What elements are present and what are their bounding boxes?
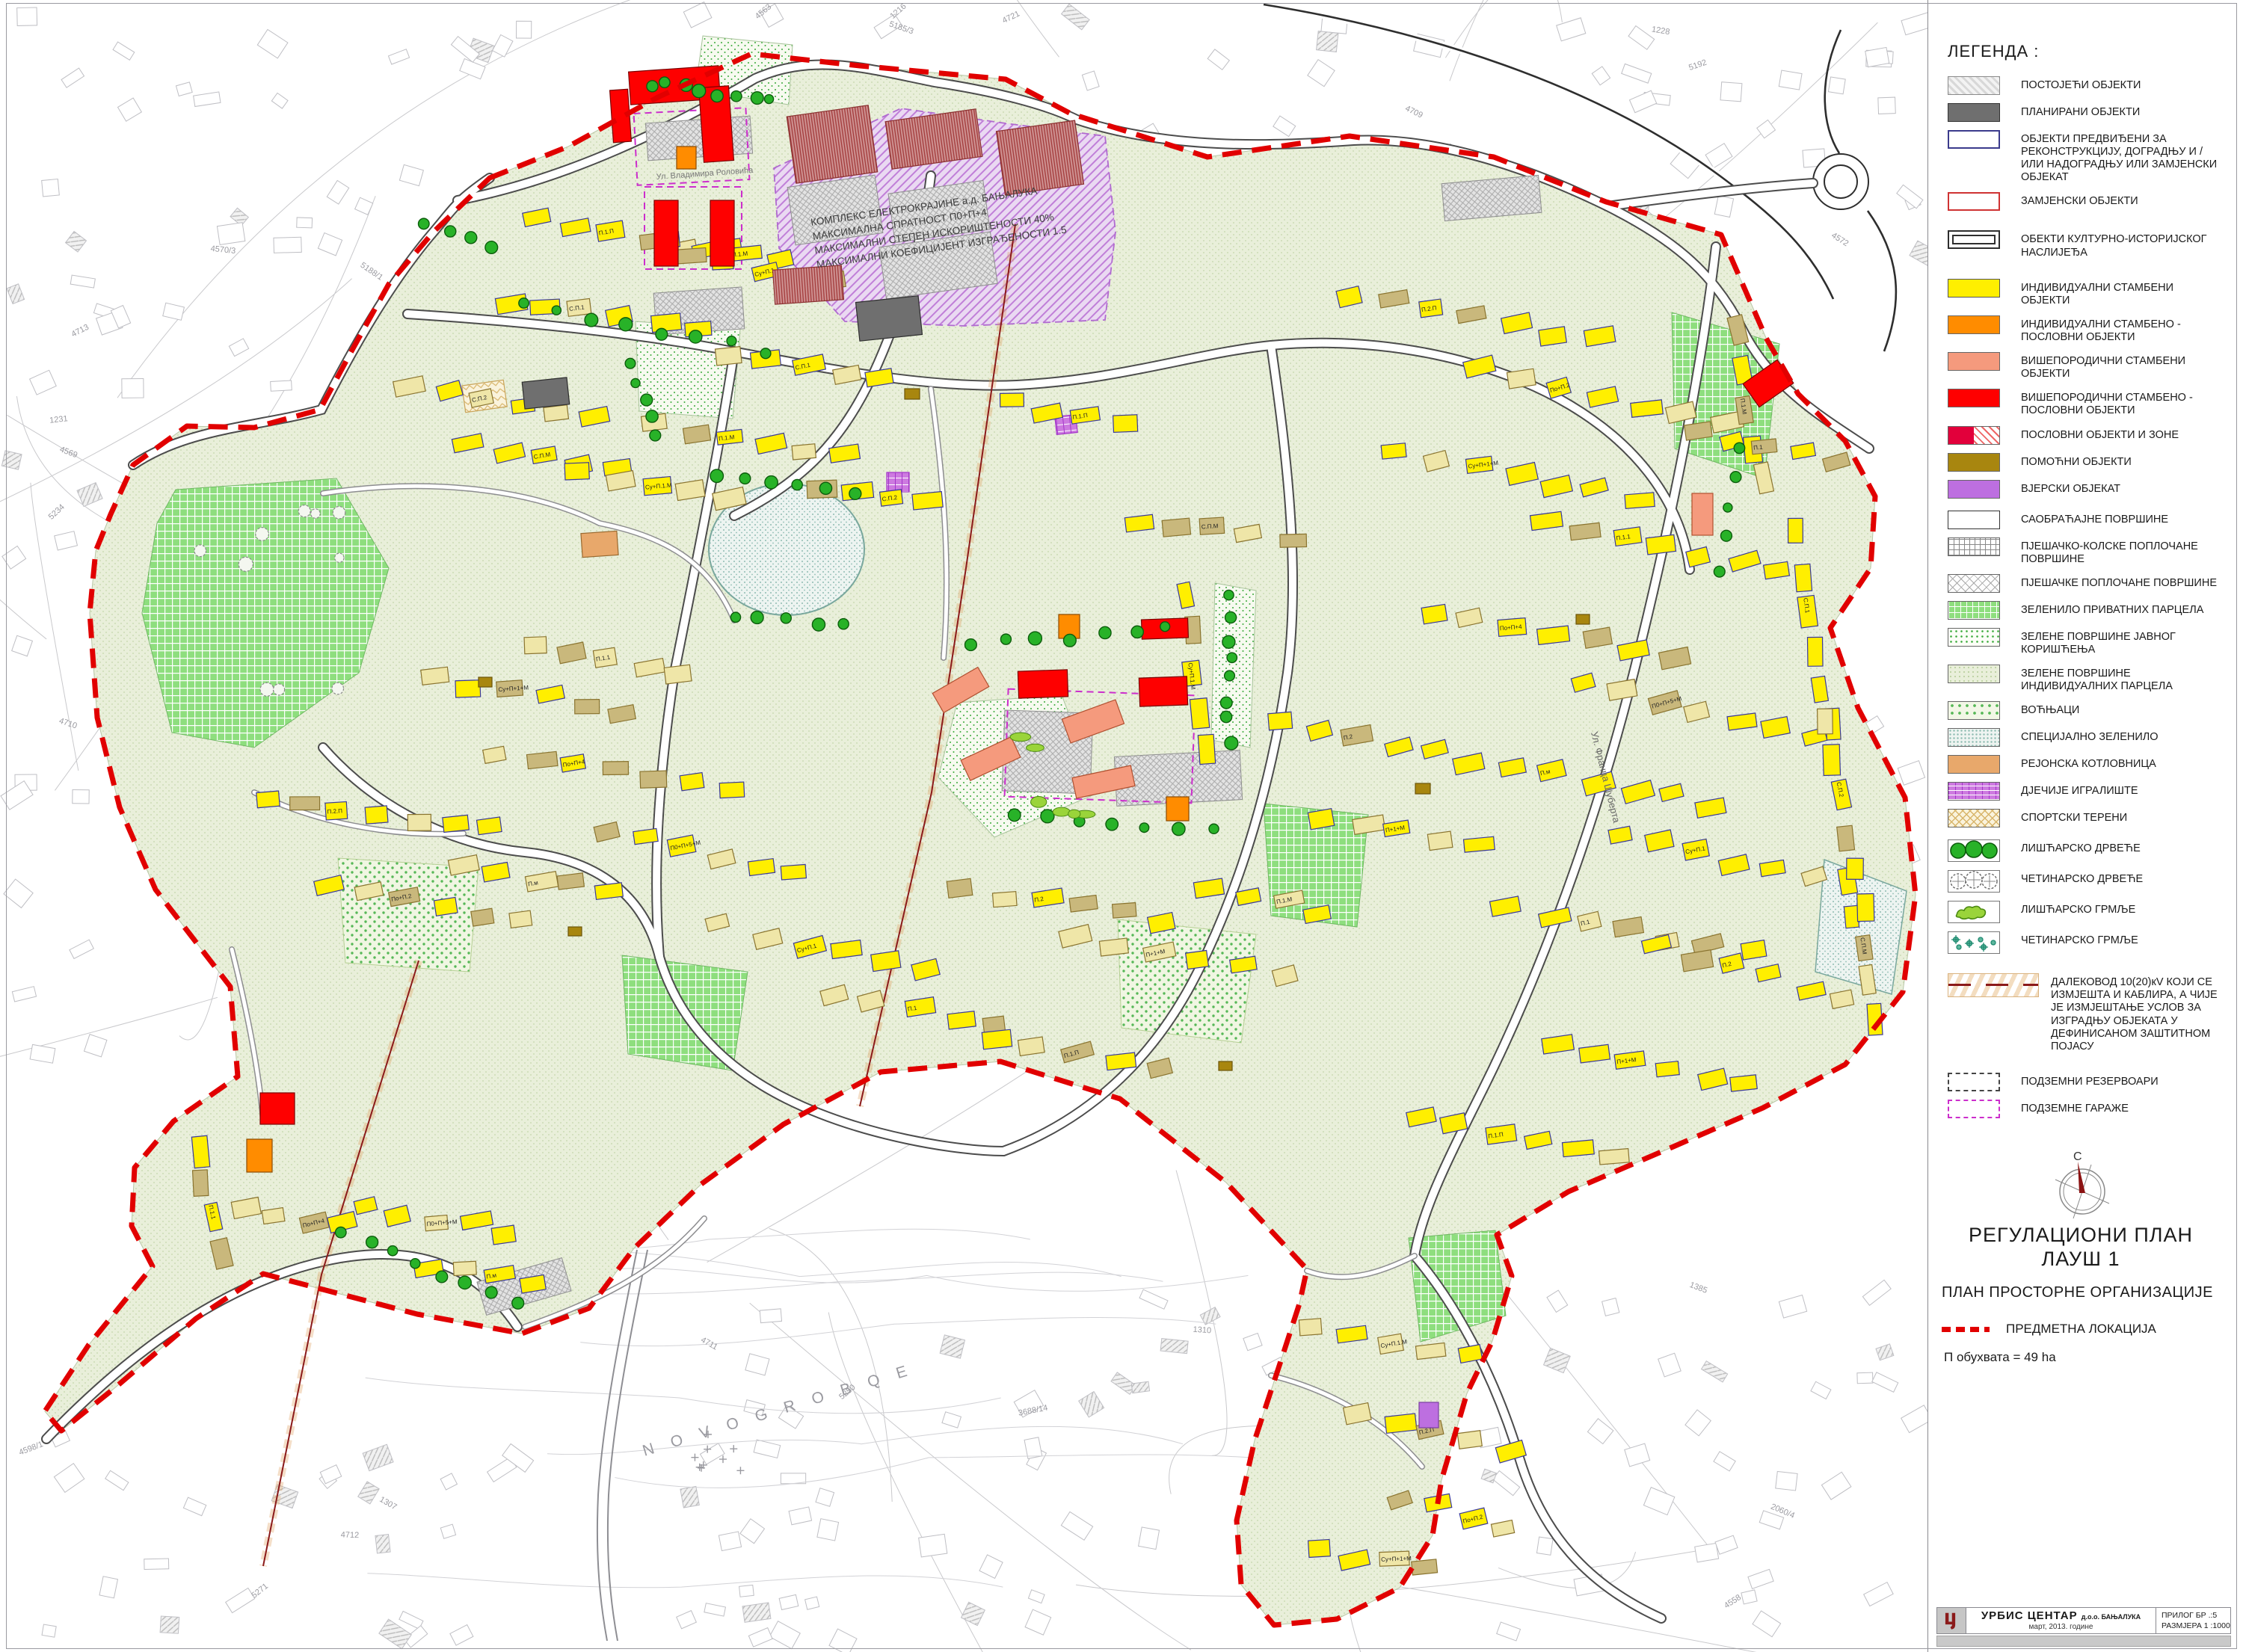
multifamily-mixed-swatch xyxy=(1948,389,2000,407)
district-heating-swatch xyxy=(1948,755,2000,774)
underground-garages-swatch xyxy=(1948,1100,2000,1118)
legend-item: ДЈЕЧИЈЕ ИГРАЛИШТЕ xyxy=(1948,782,2224,801)
coniferous-shrub-icon xyxy=(1948,931,2000,954)
title-block-company: УРБИС ЦЕНТАР д.о.о. БАЊАЛУКА март, 2013.… xyxy=(1966,1608,2156,1633)
legend-item-label: ЛИШЋАРСКО ДРВЕЋЕ xyxy=(2021,839,2141,855)
legend-item: РЕЈОНСКА КОТЛОВНИЦА xyxy=(1948,755,2224,774)
legend-item-label: ВИШЕПОРОДИЧНИ СТАМБЕНИ ОБЈЕКТИ xyxy=(2021,352,2224,380)
legend-item: ВЈЕРСКИ ОБЈЕКАТ xyxy=(1948,480,2224,499)
legend-item: ПОДЗЕМНИ РЕЗЕРВОАРИ xyxy=(1948,1073,2224,1091)
reconstruction-objects-swatch xyxy=(1948,130,2000,149)
individual-mixed-swatch xyxy=(1948,315,2000,334)
individual-residential-swatch xyxy=(1948,279,2000,298)
legend-item-label: ПОСЛОВНИ ОБЈЕКТИ И ЗОНЕ xyxy=(2021,426,2179,442)
legend-item: ЧЕТИНАРСКО ГРМЉЕ xyxy=(1948,931,2224,954)
company-name: УРБИС ЦЕНТАР xyxy=(1981,1609,2078,1622)
urbis-logo xyxy=(1937,1608,1966,1633)
legend-item-label: ПЈЕШАЧКЕ ПОПЛОЧАНЕ ПОВРШИНЕ xyxy=(2021,574,2217,590)
legend-item: ИНДИВИДУАЛНИ СТАМБЕНИ ОБЈЕКТИ xyxy=(1948,279,2224,307)
subject-location-label: ПРЕДМЕТНА ЛОКАЦИЈА xyxy=(2006,1322,2156,1337)
pedestrian-vehicle-paved-swatch xyxy=(1948,537,2000,556)
power-line-swatch xyxy=(1948,973,2039,997)
planned-objects-swatch xyxy=(1948,103,2000,122)
svg-text:П.2.П: П.2.П xyxy=(327,807,342,815)
plan-title-line2: ЛАУШ 1 xyxy=(1927,1247,2234,1271)
legend-item-label: ЛИШЋАРСКО ГРМЉЕ xyxy=(2021,901,2135,916)
legend-item-label: ПОДЗЕМНЕ ГАРАЖЕ xyxy=(2021,1100,2129,1115)
legend-item: ВОЋЊАЦИ xyxy=(1948,701,2224,720)
plan-title: РЕГУЛАЦИОНИ ПЛАН ЛАУШ 1 xyxy=(1927,1223,2234,1272)
coverage-area-label: П обухвата = 49 ha xyxy=(1944,1350,2056,1365)
legend-item: ЗАМЈЕНСКИ ОБЈЕКТИ xyxy=(1948,192,2224,211)
legend-item-label: ЗЕЛЕНЕ ПОВРШИНЕ ЈАВНОГ КОРИШЋЕЊА xyxy=(2021,628,2224,656)
pedestrian-paved-swatch xyxy=(1948,574,2000,593)
regulation-plan-map: 471347214709471047124711455845674570/345… xyxy=(0,0,2243,1652)
legend-item-label: СПЕЦИЈАЛНО ЗЕЛЕНИЛО xyxy=(2021,728,2159,744)
existing-objects-swatch xyxy=(1948,76,2000,95)
underground-reservoirs-swatch xyxy=(1948,1073,2000,1091)
traffic-surfaces-swatch xyxy=(1948,511,2000,529)
north-compass: С xyxy=(2045,1150,2120,1224)
legend-item-label: ОБЕКТИ КУЛТУРНО-ИСТОРИЈСКОГ НАСЛИЈЕЂА xyxy=(2021,230,2224,259)
legend-item: ПОСТОЈЕЋИ ОБЈЕКТИ xyxy=(1948,76,2224,95)
legend-item-label: ЗЕЛЕНИЛО ПРИВАТНИХ ПАРЦЕЛА xyxy=(2021,601,2203,617)
legend-title: ЛЕГЕНДА : xyxy=(1948,42,2224,61)
legend-item-label: ЗАМЈЕНСКИ ОБЈЕКТИ xyxy=(2021,192,2138,208)
public-green-swatch xyxy=(1948,628,2000,647)
legend-item-label: РЕЈОНСКА КОТЛОВНИЦА xyxy=(2021,755,2156,771)
legend-item-label: ДАЛЕКОВОД 10(20)кV КОЈИ СЕ ИЗМЈЕШТА И КА… xyxy=(2051,973,2224,1053)
legend-item: СПЕЦИЈАЛНО ЗЕЛЕНИЛО xyxy=(1948,728,2224,747)
legend-item: ЛИШЋАРСКО ДРВЕЋЕ xyxy=(1948,839,2224,862)
plan-date: март, 2013. године xyxy=(2029,1623,2093,1631)
legend-item: ДАЛЕКОВОД 10(20)кV КОЈИ СЕ ИЗМЈЕШТА И КА… xyxy=(1948,973,2224,1053)
legend-item-label: ЗЕЛЕНЕ ПОВРШИНЕ ИНДИВИДУАЛНИХ ПАРЦЕЛА xyxy=(2021,665,2224,693)
company-suffix: д.о.о. БАЊАЛУКА xyxy=(2082,1613,2141,1621)
subject-location-row: ПРЕДМЕТНА ЛОКАЦИЈА xyxy=(1942,1322,2156,1337)
heritage-objects-swatch xyxy=(1948,230,2000,249)
svg-text:П.1: П.1 xyxy=(1753,444,1764,451)
legend-item: ЛИШЋАРСКО ГРМЉЕ xyxy=(1948,901,2224,923)
legend-item-label: ПОДЗЕМНИ РЕЗЕРВОАРИ xyxy=(2021,1073,2159,1088)
legend-item-label: ПОМОЋНИ ОБЈЕКТИ xyxy=(2021,453,2132,469)
legend-item: ПОМОЋНИ ОБЈЕКТИ xyxy=(1948,453,2224,472)
legend-item-label: ПОСТОЈЕЋИ ОБЈЕКТИ xyxy=(2021,76,2141,92)
legend-item-label: ЧЕТИНАРСКО ГРМЉЕ xyxy=(2021,931,2138,947)
legend-item-label: ВИШЕПОРОДИЧНИ СТАМБЕНО - ПОСЛОВНИ ОБЈЕКТ… xyxy=(2021,389,2224,417)
private-greenery-swatch xyxy=(1948,601,2000,620)
legend-item: ПОДЗЕМНЕ ГАРАЖЕ xyxy=(1948,1100,2224,1118)
replacement-objects-swatch xyxy=(1948,192,2000,211)
legend-item: ЧЕТИНАРСКО ДРВЕЋЕ xyxy=(1948,870,2224,893)
svg-text:С.П.М: С.П.М xyxy=(1202,523,1219,530)
legend-item-label: ВЈЕРСКИ ОБЈЕКАТ xyxy=(2021,480,2120,496)
legend-item: ЗЕЛЕНЕ ПОВРШИНЕ ИНДИВИДУАЛНИХ ПАРЦЕЛА xyxy=(1948,665,2224,693)
legend-item: ПЛАНИРАНИ ОБЈЕКТИ xyxy=(1948,103,2224,122)
attachment-number: ПРИЛОГ БР .:5 xyxy=(2162,1610,2230,1621)
legend-item: ПЈЕШАЧКЕ ПОПЛОЧАНЕ ПОВРШИНЕ xyxy=(1948,574,2224,593)
plan-subtitle: ПЛАН ПРОСТОРНЕ ОРГАНИЗАЦИЈЕ xyxy=(1942,1284,2213,1301)
north-label: С xyxy=(2073,1150,2082,1163)
legend-panel: ЛЕГЕНДА : ПОСТОЈЕЋИ ОБЈЕКТИ ПЛАНИРАНИ ОБ… xyxy=(1927,0,2234,1652)
legend-item: ПЈЕШАЧКО-КОЛСКЕ ПОПЛОЧАНЕ ПОВРШИНЕ xyxy=(1948,537,2224,566)
multifamily-residential-swatch xyxy=(1948,352,2000,371)
deciduous-tree-icon xyxy=(1948,839,2000,862)
deciduous-shrub-icon xyxy=(1948,901,2000,923)
religious-object-swatch xyxy=(1948,480,2000,499)
sports-fields-swatch xyxy=(1948,809,2000,827)
compass-needle xyxy=(2078,1162,2085,1193)
legend-item-label: ОБЈЕКТИ ПРЕДВИЂЕНИ ЗА РЕКОНСТРУКЦИЈУ, ДО… xyxy=(2021,130,2224,184)
playground-swatch xyxy=(1948,782,2000,801)
legend-item-label: САОБРАЋАЈНЕ ПОВРШИНЕ xyxy=(2021,511,2168,526)
legend-item-label: ЧЕТИНАРСКО ДРВЕЋЕ xyxy=(2021,870,2143,886)
orchards-swatch xyxy=(1948,701,2000,720)
subject-location-swatch xyxy=(1942,1327,1990,1332)
title-block-strip xyxy=(1936,1636,2231,1647)
svg-text:Су+П+1+М: Су+П+1+М xyxy=(1381,1555,1412,1563)
title-block: УРБИС ЦЕНТАР д.о.о. БАЊАЛУКА март, 2013.… xyxy=(1936,1607,2231,1634)
scale-label: РАЗМЈЕРА 1 :1000 xyxy=(2162,1621,2230,1631)
plan-title-line1: РЕГУЛАЦИОНИ ПЛАН xyxy=(1927,1223,2234,1247)
svg-text:1310: 1310 xyxy=(1193,1325,1211,1336)
legend-item: СПОРТСКИ ТЕРЕНИ xyxy=(1948,809,2224,827)
legend-item: ОБЈЕКТИ ПРЕДВИЂЕНИ ЗА РЕКОНСТРУКЦИЈУ, ДО… xyxy=(1948,130,2224,184)
svg-text:4712: 4712 xyxy=(341,1531,360,1541)
legend-item: ВИШЕПОРОДИЧНИ СТАМБЕНО - ПОСЛОВНИ ОБЈЕКТ… xyxy=(1948,389,2224,417)
legend-item-label: ИНДИВИДУАЛНИ СТАМБЕНИ ОБЈЕКТИ xyxy=(2021,279,2224,307)
business-objects-swatch xyxy=(1948,426,2000,445)
legend-item: ОБЕКТИ КУЛТУРНО-ИСТОРИЈСКОГ НАСЛИЈЕЂА xyxy=(1948,230,2224,259)
legend-item: ЗЕЛЕНЕ ПОВРШИНЕ ЈАВНОГ КОРИШЋЕЊА xyxy=(1948,628,2224,656)
legend-item: ПОСЛОВНИ ОБЈЕКТИ И ЗОНЕ xyxy=(1948,426,2224,445)
special-greenery-swatch xyxy=(1948,728,2000,747)
plan-sheet: 471347214709471047124711455845674570/345… xyxy=(0,0,2243,1652)
auxiliary-objects-swatch xyxy=(1948,453,2000,472)
legend-item-label: ПЛАНИРАНИ ОБЈЕКТИ xyxy=(2021,103,2140,119)
title-block-meta: ПРИЛОГ БР .:5 РАЗМЈЕРА 1 :1000 xyxy=(2156,1608,2230,1633)
legend-item-label: ПЈЕШАЧКО-КОЛСКЕ ПОПЛОЧАНЕ ПОВРШИНЕ xyxy=(2021,537,2224,566)
legend-item-label: СПОРТСКИ ТЕРЕНИ xyxy=(2021,809,2127,825)
legend-item-label: ДЈЕЧИЈЕ ИГРАЛИШТЕ xyxy=(2021,782,2138,798)
legend-item-label: ИНДИВИДУАЛНИ СТАМБЕНО - ПОСЛОВНИ ОБЈЕКТИ xyxy=(2021,315,2224,344)
legend-item: САОБРАЋАЈНЕ ПОВРШИНЕ xyxy=(1948,511,2224,529)
coniferous-tree-icon xyxy=(1948,870,2000,893)
legend-item: ЗЕЛЕНИЛО ПРИВАТНИХ ПАРЦЕЛА xyxy=(1948,601,2224,620)
legend-item: ВИШЕПОРОДИЧНИ СТАМБЕНИ ОБЈЕКТИ xyxy=(1948,352,2224,380)
individual-parcel-green-swatch xyxy=(1948,665,2000,683)
legend-item: ИНДИВИДУАЛНИ СТАМБЕНО - ПОСЛОВНИ ОБЈЕКТИ xyxy=(1948,315,2224,344)
legend-item-label: ВОЋЊАЦИ xyxy=(2021,701,2079,717)
